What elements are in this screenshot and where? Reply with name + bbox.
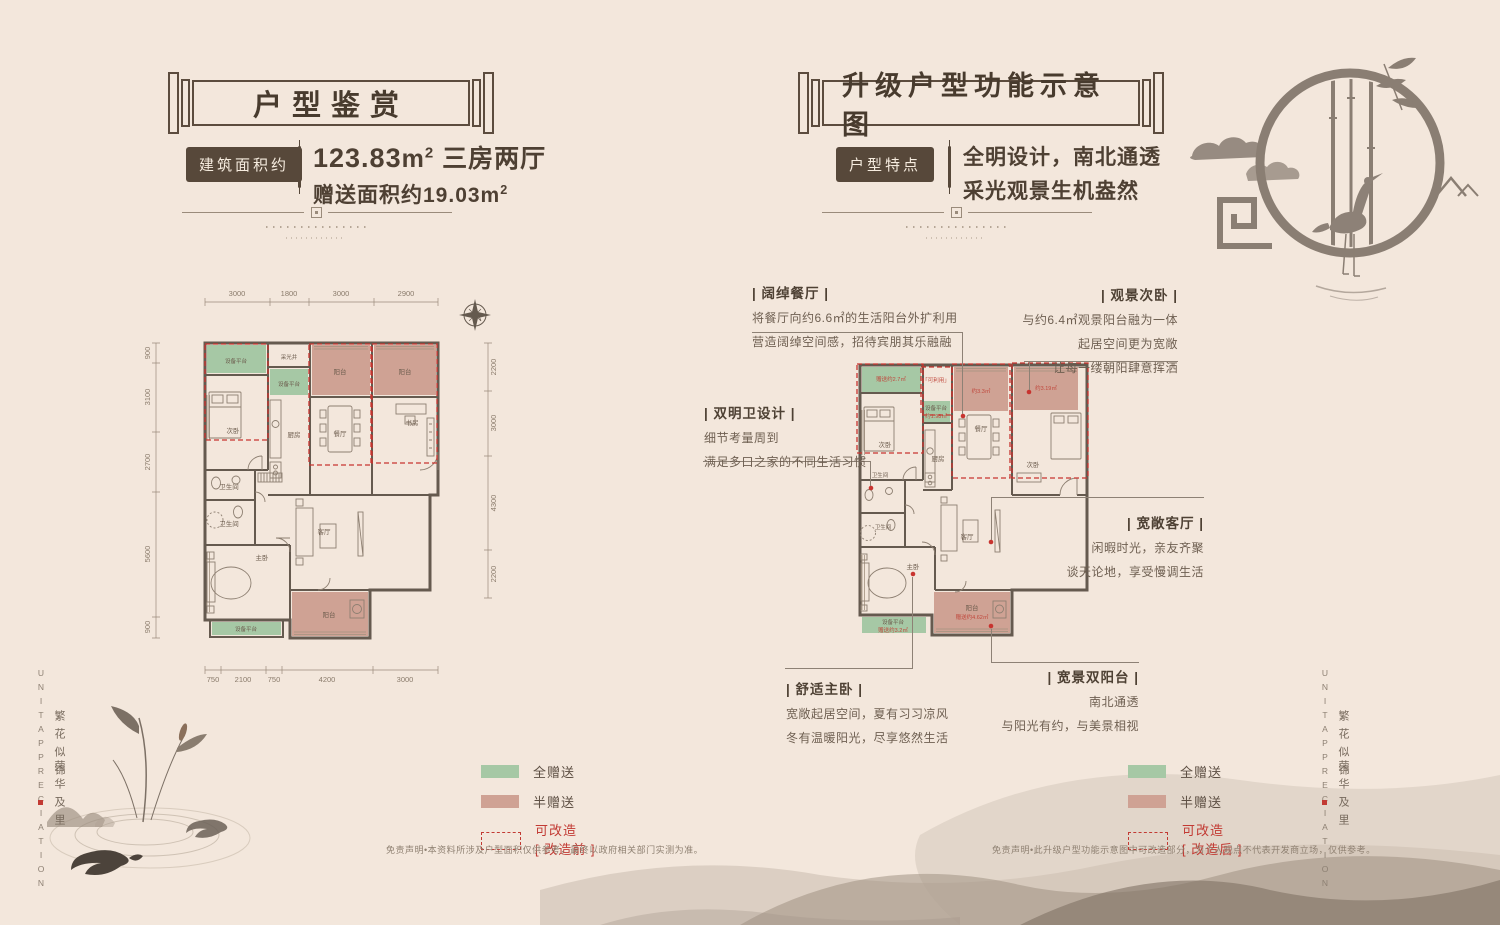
- annotation-master: | 舒适主卧 | 宽敞起居空间，夏有习习凉风 冬有温暖阳光，尽享悠然生活: [786, 678, 1001, 746]
- ink-mountains-graphic: [540, 735, 1500, 925]
- dim-label: 2900: [398, 289, 415, 298]
- dim-label: 2200: [489, 359, 498, 376]
- room-label: 赠送约3.2㎡: [878, 626, 908, 634]
- moon-window-crane-graphic: [1140, 28, 1490, 318]
- right-banner-title: 升级户型功能示意图: [822, 80, 1140, 126]
- room-label: 约1.98㎡: [925, 412, 947, 420]
- divider-dots: [286, 237, 346, 239]
- annotation-line: 将餐厅向约6.6㎡的生活阳台外扩利用: [752, 309, 970, 326]
- annotation-line: 与约6.4㎡观景阳台融为一体: [1018, 311, 1178, 328]
- annotation-bedroom: | 观景次卧 | 与约6.4㎡观景阳台融为一体 起居空间更为宽敞 让每一缕朝阳肆…: [1018, 284, 1178, 376]
- floorplan-before: 设备平台 采光井 设备平台 阳台 阳台 次卧 厨房 餐厅 书房 卫生间 卫生间 …: [138, 288, 500, 685]
- dim-label: 3100: [143, 389, 152, 406]
- room-label: 卫生间: [875, 523, 892, 531]
- scroll-cap-icon: [1142, 79, 1151, 127]
- scroll-cap-icon: [811, 79, 820, 127]
- annotation-title: | 宽敞客厅 |: [1042, 512, 1204, 532]
- room-label: 厨房: [288, 430, 301, 439]
- room-label: 设备平台: [925, 404, 948, 412]
- leader-line: [991, 629, 992, 662]
- feature-line: 全明设计，南北通透: [963, 141, 1161, 171]
- legend-swatch-full-gift: [481, 765, 519, 778]
- dim-label: 750: [268, 675, 281, 684]
- room-label: 卫生间: [219, 482, 239, 491]
- area-unit: m: [402, 145, 425, 173]
- right-info-label: 户型特点: [836, 147, 934, 182]
- legend-label: 可改造: [1182, 822, 1242, 841]
- right-banner: 升级户型功能示意图: [798, 72, 1164, 134]
- divider-dots: [266, 226, 366, 228]
- room-label: 次卧: [1027, 460, 1041, 469]
- legend-label: 全赠送: [533, 762, 575, 781]
- dim-label: 1800: [281, 289, 298, 298]
- annotation-line: 与阳光有约，与美景相视: [977, 717, 1139, 734]
- room-label: 约3.3㎡: [972, 387, 991, 395]
- dim-label: 3000: [333, 289, 350, 298]
- divider-dots: [926, 237, 986, 239]
- plan-furniture: [207, 392, 438, 618]
- annotation-line: 细节考量周到: [704, 429, 899, 446]
- room-label: 客厅: [318, 527, 332, 536]
- leader-line: [912, 577, 913, 668]
- left-info-label: 建筑面积约: [186, 147, 302, 182]
- annotation-line: 南北通透: [977, 693, 1139, 710]
- room-label: 客厅: [961, 532, 975, 541]
- dim-label: 3000: [397, 675, 414, 684]
- annotation-bath: | 双明卫设计 | 细节考量周到 满足多口之家的不同生活习惯: [704, 402, 899, 470]
- annotation-title: | 舒适主卧 |: [786, 678, 1001, 698]
- dim-label: 900: [143, 347, 152, 360]
- legend-swatch-half-gift: [1128, 795, 1166, 808]
- compass-icon: [459, 299, 491, 331]
- divider-ornament-icon: [951, 207, 962, 218]
- legend-swatch-full-gift: [1128, 765, 1166, 778]
- dim-label: 3000: [489, 415, 498, 432]
- legend-label: 全赠送: [1180, 762, 1222, 781]
- annotation-line: 起居空间更为宽敞: [1018, 335, 1178, 352]
- left-info-text: 123.83m2 三房两厅 赠送面积约19.03m2: [313, 139, 546, 209]
- side-text-en-left: UNITAPPRECIATION: [36, 668, 46, 796]
- feature-line: 采光观景生机盎然: [963, 175, 1161, 205]
- dim-label: 2700: [143, 454, 152, 471]
- annotation-title: | 双明卫设计 |: [704, 402, 899, 422]
- dim-label: 2100: [235, 675, 252, 684]
- seal-square-right: [1322, 800, 1327, 805]
- poster-canvas: UNITAPPRECIATION 繁花似锦 荣华及里 UNITAPPRECIAT…: [0, 0, 1500, 925]
- room-label: 阳台: [334, 367, 347, 376]
- room-label: 主卧: [256, 553, 270, 562]
- legend-swatch-half-gift: [481, 795, 519, 808]
- gift-area: 赠送面积约19.03m: [313, 184, 500, 207]
- legend-label: 半赠送: [533, 792, 575, 811]
- room-label: 设备平台: [235, 625, 258, 633]
- left-disclaimer: 免责声明•本资料所涉及户型面积仅供参考，最终以政府相关部门实测为准。: [386, 843, 703, 856]
- side-text-cn-bottom-right: 荣华及里: [1335, 760, 1351, 844]
- scroll-cap-icon: [1153, 72, 1164, 134]
- legend-label: 可改造: [535, 822, 595, 841]
- annotation-line: 满足多口之家的不同生活习惯: [704, 453, 899, 470]
- annotation-dining: | 阔绰餐厅 | 将餐厅向约6.6㎡的生活阳台外扩利用 营造阔绰空间感，招待宾朋…: [752, 282, 970, 350]
- divider-dots: [906, 226, 1006, 228]
- leader-line: [991, 662, 1139, 663]
- seal-square-left: [38, 800, 43, 805]
- room-label: 阳台: [323, 610, 336, 619]
- legend-label: 半赠送: [1180, 792, 1222, 811]
- annotation-line: 营造阔绰空间感，招待宾朋其乐融融: [752, 333, 970, 350]
- scroll-cap-icon: [181, 79, 190, 127]
- gift-sup: 2: [500, 183, 508, 197]
- room-label: 次卧: [227, 426, 241, 435]
- divider-line: [328, 212, 452, 213]
- side-text-cn-bottom-left: 荣华及里: [51, 760, 67, 844]
- area-rooms: 三房两厅: [442, 145, 546, 173]
- room-label: 赠送约2.7㎡: [876, 375, 906, 383]
- annotation-title: | 阔绰餐厅 |: [752, 282, 970, 302]
- leader-line: [991, 497, 992, 540]
- room-label: 约3.19㎡: [1035, 384, 1057, 392]
- right-disclaimer: 免责声明•此升级户型功能示意图中可改造部分，为个人观点不代表开发商立场，仅供参考…: [992, 843, 1376, 856]
- floorplan-after: 赠送约2.7㎡ 「可利用」 设备平台 约1.98㎡ 厨房 约3.3㎡ 餐厅 次卧…: [855, 355, 1100, 645]
- annotation-line: 冬有温暖阳光，尽享悠然生活: [786, 729, 1001, 746]
- annotation-living: | 宽敞客厅 | 闲暇时光，亲友齐聚 谈天论地，享受慢调生活: [1042, 512, 1204, 580]
- room-label: 阳台: [966, 603, 979, 612]
- annotation-title: | 观景次卧 |: [1018, 284, 1178, 304]
- room-label: 餐厅: [975, 424, 989, 433]
- annotation-line: 宽敞起居空间，夏有习习凉风: [786, 705, 1001, 722]
- room-label: 书房: [406, 418, 419, 427]
- scroll-cap-icon: [168, 72, 179, 134]
- leader-line: [785, 668, 913, 669]
- info-divider-rod: [948, 146, 951, 188]
- room-label: 卫生间: [219, 519, 239, 528]
- scroll-cap-icon: [472, 79, 481, 127]
- room-label: 阳台: [399, 367, 412, 376]
- dim-label: 3000: [229, 289, 246, 298]
- dim-label: 2200: [489, 566, 498, 583]
- area-value: 123.83: [313, 143, 402, 173]
- room-label: 设备平台: [882, 618, 905, 626]
- room-label: 设备平台: [225, 357, 248, 365]
- room-label: 设备平台: [278, 380, 301, 388]
- side-text-en-right: UNITAPPRECIATION: [1320, 668, 1330, 796]
- annotation-balcony: | 宽景双阳台 | 南北通透 与阳光有约，与美景相视: [977, 666, 1139, 734]
- plan-fills: [207, 345, 436, 636]
- annotation-line: 让每一缕朝阳肆意挥洒: [1018, 359, 1178, 376]
- divider-line: [968, 212, 1092, 213]
- annotation-line: 谈天论地，享受慢调生活: [1042, 563, 1204, 580]
- room-label: 厨房: [932, 454, 945, 463]
- room-label: 「可利用」: [922, 376, 950, 384]
- left-banner-title: 户型鉴赏: [192, 80, 470, 126]
- dim-label: 4300: [489, 495, 498, 512]
- left-banner: 户型鉴赏: [168, 72, 494, 134]
- dim-label: 4200: [319, 675, 336, 684]
- annotation-title: | 宽景双阳台 |: [977, 666, 1139, 686]
- leader-line: [991, 497, 1204, 498]
- scroll-cap-icon: [483, 72, 494, 134]
- room-label: 餐厅: [334, 429, 348, 438]
- room-label: 主卧: [907, 562, 921, 571]
- right-info-text: 全明设计，南北通透 采光观景生机盎然: [963, 141, 1161, 205]
- info-divider-rod: [298, 146, 301, 188]
- divider-line: [182, 212, 304, 213]
- room-label: 赠送约4.62㎡: [956, 613, 989, 621]
- dim-label: 900: [143, 621, 152, 634]
- divider-line: [822, 212, 944, 213]
- scroll-cap-icon: [798, 72, 809, 134]
- divider-ornament-icon: [311, 207, 322, 218]
- dim-label: 750: [207, 675, 220, 684]
- room-label: 卫生间: [872, 471, 889, 479]
- area-sup: 2: [425, 145, 434, 162]
- annotation-line: 闲暇时光，亲友齐聚: [1042, 539, 1204, 556]
- dim-label: 5600: [143, 546, 152, 563]
- room-label: 采光井: [281, 353, 298, 361]
